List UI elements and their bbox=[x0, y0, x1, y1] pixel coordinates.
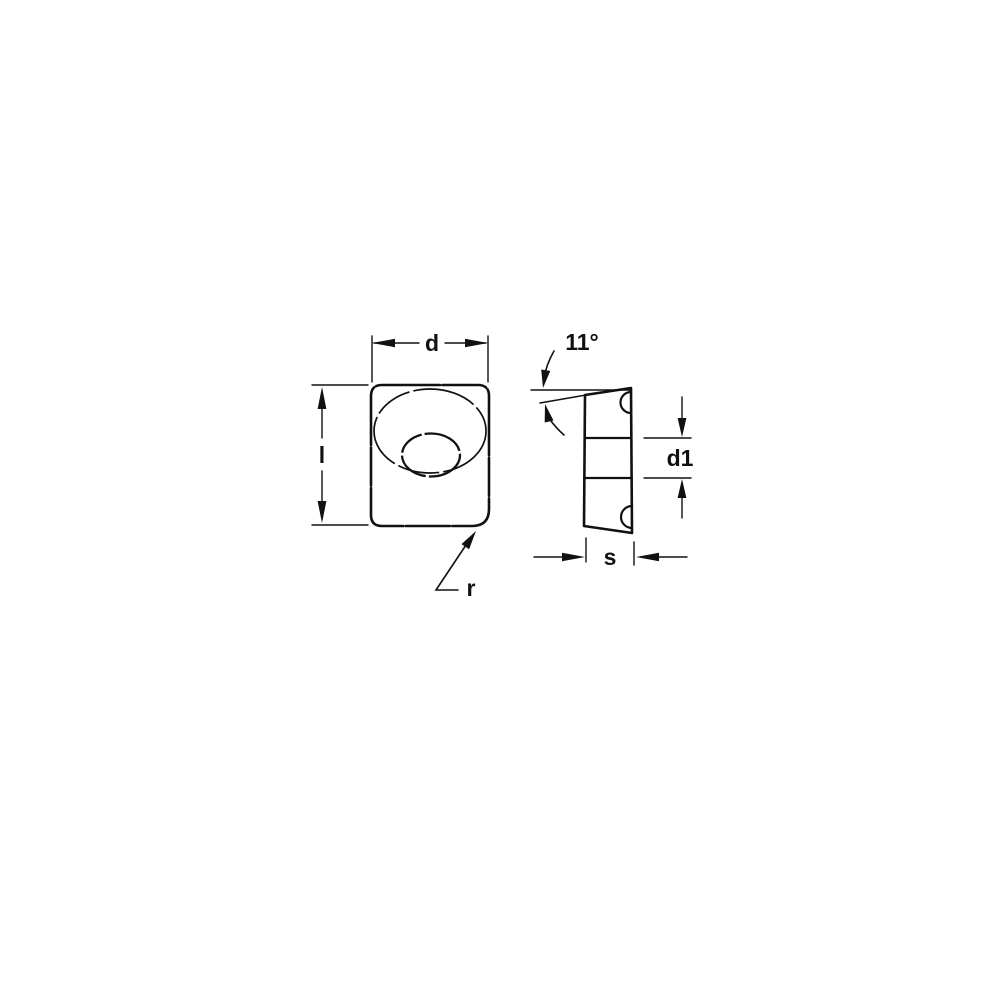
angle-leader-lower bbox=[550, 419, 565, 435]
s-arrowhead-right bbox=[562, 553, 585, 562]
s-label: s bbox=[604, 544, 617, 570]
r-arrowhead bbox=[462, 531, 477, 549]
leader-r: r bbox=[436, 531, 476, 601]
side-corner-arc-bottom bbox=[621, 506, 632, 528]
dimension-l: l bbox=[312, 385, 368, 525]
dimension-d1: d1 bbox=[644, 397, 694, 518]
s-arrowhead-left bbox=[636, 553, 659, 562]
r-label: r bbox=[467, 575, 476, 601]
l-arrowhead-up bbox=[318, 387, 327, 409]
front-view: d l r bbox=[312, 330, 489, 601]
r-leader-line bbox=[436, 539, 470, 590]
dimension-d: d bbox=[372, 330, 488, 382]
dimension-s: s bbox=[534, 538, 687, 570]
side-corner-arc-top bbox=[621, 392, 632, 413]
insert-technical-drawing: d l r bbox=[0, 0, 1000, 1000]
d-arrowhead-right bbox=[465, 339, 488, 347]
l-label: l bbox=[319, 442, 325, 468]
l-arrowhead-down bbox=[318, 501, 327, 523]
angle-label: 11° bbox=[565, 329, 599, 355]
d-label: d bbox=[425, 330, 439, 356]
d1-label: d1 bbox=[667, 445, 694, 471]
d1-arrowhead-up bbox=[678, 479, 687, 498]
angle-arrowhead-upper bbox=[541, 370, 550, 389]
technical-drawing-canvas: d l r bbox=[0, 0, 1000, 1000]
insert-hole-ellipse bbox=[402, 434, 460, 477]
insert-face-circle bbox=[374, 389, 486, 473]
d-arrowhead-left bbox=[372, 339, 395, 347]
d1-arrowhead-down bbox=[678, 418, 687, 437]
angle-reference-line-slanted bbox=[540, 395, 586, 403]
side-view: 11° d1 s bbox=[531, 329, 694, 570]
insert-body-outline bbox=[371, 385, 489, 526]
angle-annotation-11deg: 11° bbox=[531, 329, 630, 435]
